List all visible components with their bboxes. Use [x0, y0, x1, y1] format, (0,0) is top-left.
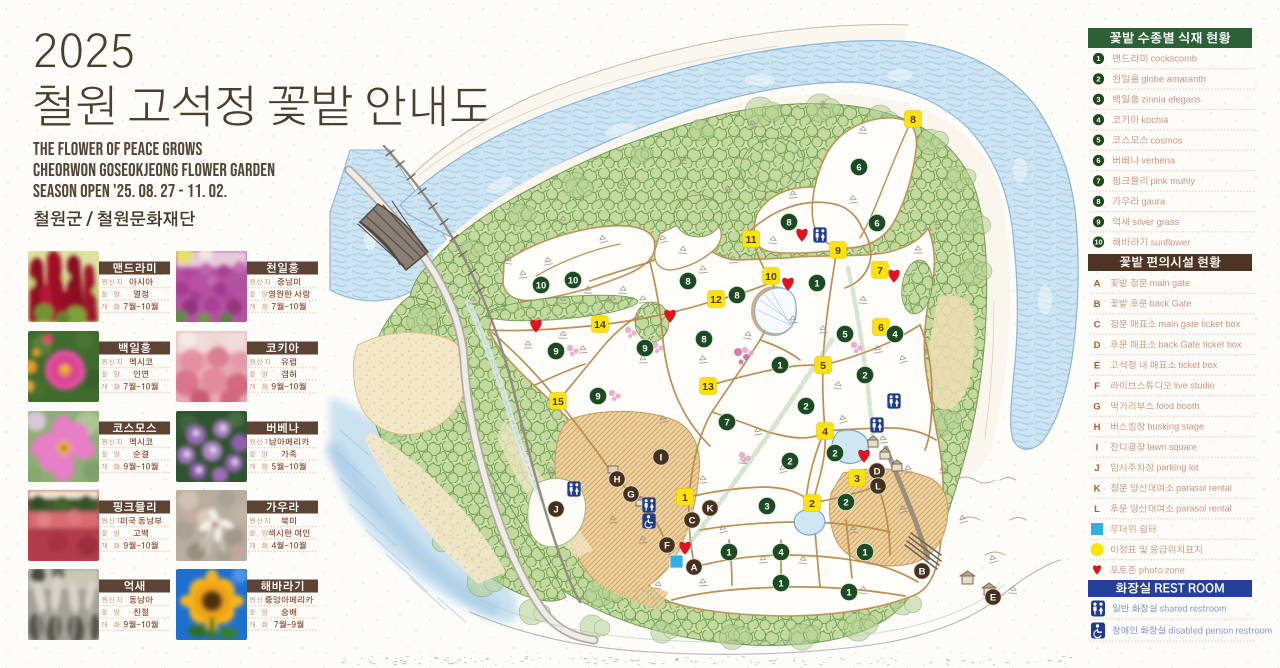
- svg-text:H: H: [1094, 422, 1101, 433]
- svg-text:E: E: [1094, 360, 1100, 371]
- svg-text:8: 8: [1096, 197, 1100, 206]
- svg-text:3: 3: [854, 473, 860, 485]
- svg-text:8: 8: [786, 217, 791, 228]
- svg-text:live studio: live studio: [1174, 381, 1215, 391]
- svg-text:2: 2: [787, 456, 792, 467]
- svg-text:3: 3: [764, 501, 769, 512]
- svg-text:D: D: [874, 466, 881, 477]
- svg-text:G: G: [627, 489, 634, 500]
- svg-text:parasol rental: parasol rental: [1176, 504, 1232, 514]
- svg-text:2: 2: [843, 497, 848, 508]
- svg-text:9: 9: [595, 391, 600, 402]
- svg-text:kochia: kochia: [1141, 115, 1169, 125]
- svg-text:11: 11: [745, 234, 756, 246]
- svg-text:9: 9: [1096, 217, 1100, 226]
- svg-text:6: 6: [874, 218, 879, 229]
- svg-text:5: 5: [1096, 136, 1100, 145]
- svg-text:7: 7: [724, 417, 729, 428]
- svg-text:F: F: [664, 540, 670, 551]
- svg-text:K: K: [707, 503, 714, 514]
- svg-text:14: 14: [594, 319, 606, 331]
- svg-text:10: 10: [568, 275, 579, 286]
- svg-text:J: J: [1094, 463, 1099, 474]
- svg-text:1: 1: [846, 587, 852, 598]
- svg-text:gaura: gaura: [1141, 197, 1166, 207]
- svg-text:6: 6: [878, 322, 884, 334]
- svg-text:9: 9: [553, 346, 558, 357]
- svg-text:2: 2: [809, 498, 815, 510]
- svg-text:A: A: [1094, 278, 1101, 289]
- svg-text:1: 1: [862, 547, 868, 558]
- svg-text:1: 1: [726, 547, 732, 558]
- svg-text:G: G: [1093, 401, 1100, 412]
- svg-text:1: 1: [682, 492, 688, 504]
- svg-text:pink muhly: pink muhly: [1151, 176, 1196, 186]
- svg-text:3: 3: [1096, 95, 1100, 104]
- svg-text:5: 5: [820, 360, 826, 372]
- svg-text:busking stage: busking stage: [1147, 422, 1204, 432]
- svg-text:J: J: [553, 504, 558, 515]
- svg-text:lawn square: lawn square: [1147, 442, 1197, 452]
- svg-text:13: 13: [702, 381, 714, 393]
- svg-text:parasol rental: parasol rental: [1176, 483, 1232, 493]
- svg-text:L: L: [875, 481, 881, 492]
- svg-text:4: 4: [892, 329, 898, 340]
- svg-text:8: 8: [701, 334, 706, 345]
- svg-text:2: 2: [862, 370, 867, 381]
- svg-text:10: 10: [765, 271, 777, 283]
- svg-text:cosmos: cosmos: [1151, 135, 1183, 145]
- svg-text:F: F: [1094, 381, 1100, 392]
- svg-text:1: 1: [814, 278, 820, 289]
- svg-text:C: C: [689, 515, 696, 526]
- svg-text:verbena: verbena: [1141, 156, 1175, 166]
- svg-text:E: E: [990, 592, 996, 603]
- svg-text:15: 15: [552, 396, 564, 408]
- svg-text:2: 2: [832, 448, 837, 459]
- svg-text:K: K: [1094, 483, 1101, 494]
- svg-text:silver grass: silver grass: [1132, 217, 1179, 227]
- svg-text:parking lot: parking lot: [1156, 463, 1199, 473]
- svg-text:9: 9: [642, 343, 647, 354]
- svg-text:9: 9: [835, 245, 841, 257]
- svg-text:12: 12: [710, 294, 722, 306]
- svg-text:main gate: main gate: [1150, 278, 1190, 288]
- svg-text:ticket box: ticket box: [1178, 360, 1217, 370]
- svg-text:7: 7: [1096, 177, 1100, 186]
- svg-text:1: 1: [777, 360, 783, 371]
- svg-text:2: 2: [1096, 75, 1100, 84]
- svg-text:I: I: [660, 452, 663, 463]
- svg-text:5: 5: [842, 329, 848, 340]
- svg-text:1: 1: [1096, 54, 1100, 63]
- svg-text:A: A: [691, 562, 698, 573]
- svg-text:1: 1: [778, 578, 784, 589]
- svg-text:back Gate ticket box: back Gate ticket box: [1158, 340, 1242, 350]
- svg-text:8: 8: [910, 114, 916, 126]
- svg-text:main gate ticket box: main gate ticket box: [1158, 319, 1240, 329]
- svg-text:2: 2: [803, 401, 808, 412]
- svg-text:4: 4: [822, 426, 828, 438]
- svg-text:8: 8: [734, 290, 739, 301]
- svg-text:sunflower: sunflower: [1151, 237, 1191, 247]
- svg-text:6: 6: [856, 162, 861, 173]
- svg-text:back Gate: back Gate: [1150, 299, 1192, 309]
- svg-text:H: H: [614, 474, 621, 485]
- svg-text:B: B: [919, 566, 926, 577]
- svg-text:6: 6: [1096, 156, 1100, 165]
- svg-text:D: D: [1094, 340, 1101, 351]
- svg-text:8: 8: [685, 276, 690, 287]
- svg-text:C: C: [1094, 319, 1101, 330]
- svg-text:4: 4: [778, 547, 784, 558]
- svg-text:food booth: food booth: [1156, 401, 1199, 411]
- svg-text:10: 10: [1094, 238, 1102, 247]
- svg-text:L: L: [1094, 504, 1100, 515]
- svg-text:zinnia elegans: zinnia elegans: [1141, 95, 1201, 105]
- svg-text:I: I: [1096, 442, 1099, 453]
- svg-text:7: 7: [877, 265, 883, 277]
- svg-text:10: 10: [536, 280, 547, 291]
- svg-text:B: B: [1094, 299, 1101, 310]
- svg-text:cockscomb: cockscomb: [1151, 54, 1198, 64]
- svg-text:globe amaranth: globe amaranth: [1141, 74, 1206, 84]
